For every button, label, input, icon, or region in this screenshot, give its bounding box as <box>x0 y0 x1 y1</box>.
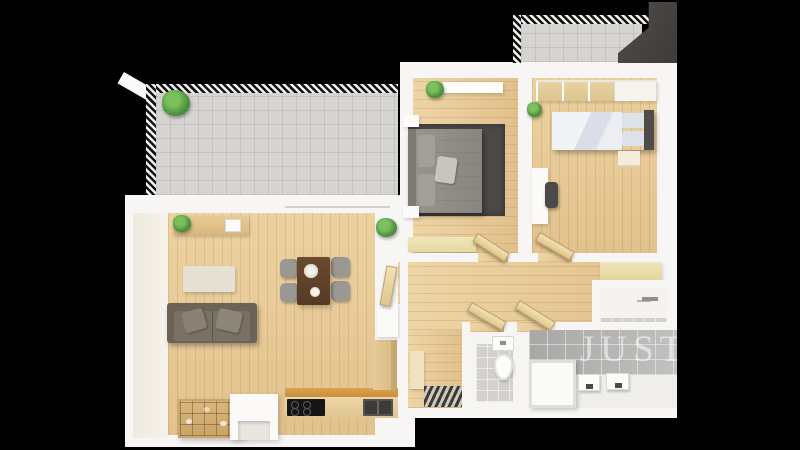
flush-button-icon <box>500 341 506 345</box>
shelf-item <box>204 407 210 412</box>
island-recess <box>238 421 270 440</box>
kitchen-island <box>230 394 278 440</box>
kitchen-counter <box>285 397 398 418</box>
burner-icon <box>303 408 311 416</box>
living-plant-left-icon <box>173 215 191 232</box>
hall-north-wall <box>408 253 662 262</box>
wardrobe-door-section <box>614 82 657 101</box>
living-door-open <box>380 265 398 306</box>
sideboard-tablet <box>225 219 241 232</box>
wc-west-wall <box>462 322 470 408</box>
dining-chair <box>331 257 350 277</box>
bathtub <box>529 360 576 408</box>
bathroom-sink <box>578 374 600 391</box>
terrace-plant-icon <box>162 90 190 116</box>
bedroom1-plant-icon <box>426 81 444 98</box>
single-bed-headboard <box>644 110 654 150</box>
watermark: JUSTO <box>580 328 677 371</box>
single-bed-pillow-icon <box>622 131 644 146</box>
bed-pillow-icon <box>418 135 435 167</box>
single-bed-pillow-icon <box>622 113 644 128</box>
bedroom2-nightstand <box>618 151 640 167</box>
balcony-railing-left <box>513 15 521 63</box>
living-plant-right-icon <box>376 218 397 237</box>
shelf-item <box>220 421 227 426</box>
living-room-block <box>125 195 415 447</box>
dining-chair <box>280 283 298 302</box>
dining-chair <box>331 281 350 301</box>
double-bed <box>408 129 482 213</box>
sofa-seat-divider <box>212 311 213 341</box>
bedroom-block: JUSTO <box>400 62 677 418</box>
faucet-icon <box>586 384 593 389</box>
balcony <box>500 0 680 65</box>
cooktop <box>287 399 325 416</box>
desk-chair <box>545 182 558 208</box>
bed-accent-pillow-icon <box>434 156 457 185</box>
terrace-floor <box>156 93 398 195</box>
floor-plan-render: JUSTO <box>0 0 800 450</box>
bedroom2-plant-icon <box>527 102 542 117</box>
balcony-railing-top <box>513 15 649 24</box>
tall-cabinet <box>373 340 397 390</box>
single-bed <box>552 110 654 150</box>
wardrobe-open-section <box>536 82 614 101</box>
nightstand <box>403 115 419 127</box>
table-centerpiece <box>304 264 318 278</box>
wc-room <box>470 332 519 408</box>
bed-pillow-icon <box>418 174 435 206</box>
single-bed-duvet <box>552 112 622 150</box>
living-rug <box>183 266 235 292</box>
terrace-door-line <box>285 206 390 208</box>
faucet-icon <box>615 383 622 388</box>
bedroom1-wall-shelf <box>443 82 503 93</box>
hall-bench <box>600 262 662 281</box>
faucet-icon <box>642 297 658 301</box>
hall-side-counter <box>377 303 398 337</box>
bed-headboard <box>408 129 416 213</box>
shelf-item <box>186 419 192 424</box>
bathroom-sink <box>606 373 629 390</box>
terrace <box>0 0 420 215</box>
bedroom1-bench <box>408 237 476 252</box>
nightstand <box>403 206 419 218</box>
utility-north-wall <box>592 280 677 288</box>
shoe-cabinet <box>410 351 424 389</box>
kitchen-sink <box>363 399 393 416</box>
dining-chair <box>280 259 298 278</box>
cistern <box>492 336 514 351</box>
table-plate <box>310 287 320 297</box>
wc-bath-divider-wall <box>519 332 529 408</box>
sink-divider <box>377 401 379 414</box>
wardrobe <box>536 80 657 101</box>
sofa <box>167 303 257 343</box>
left-wall-ledge <box>133 213 170 438</box>
terrace-railing-left <box>146 84 156 196</box>
burner-icon <box>291 408 299 416</box>
